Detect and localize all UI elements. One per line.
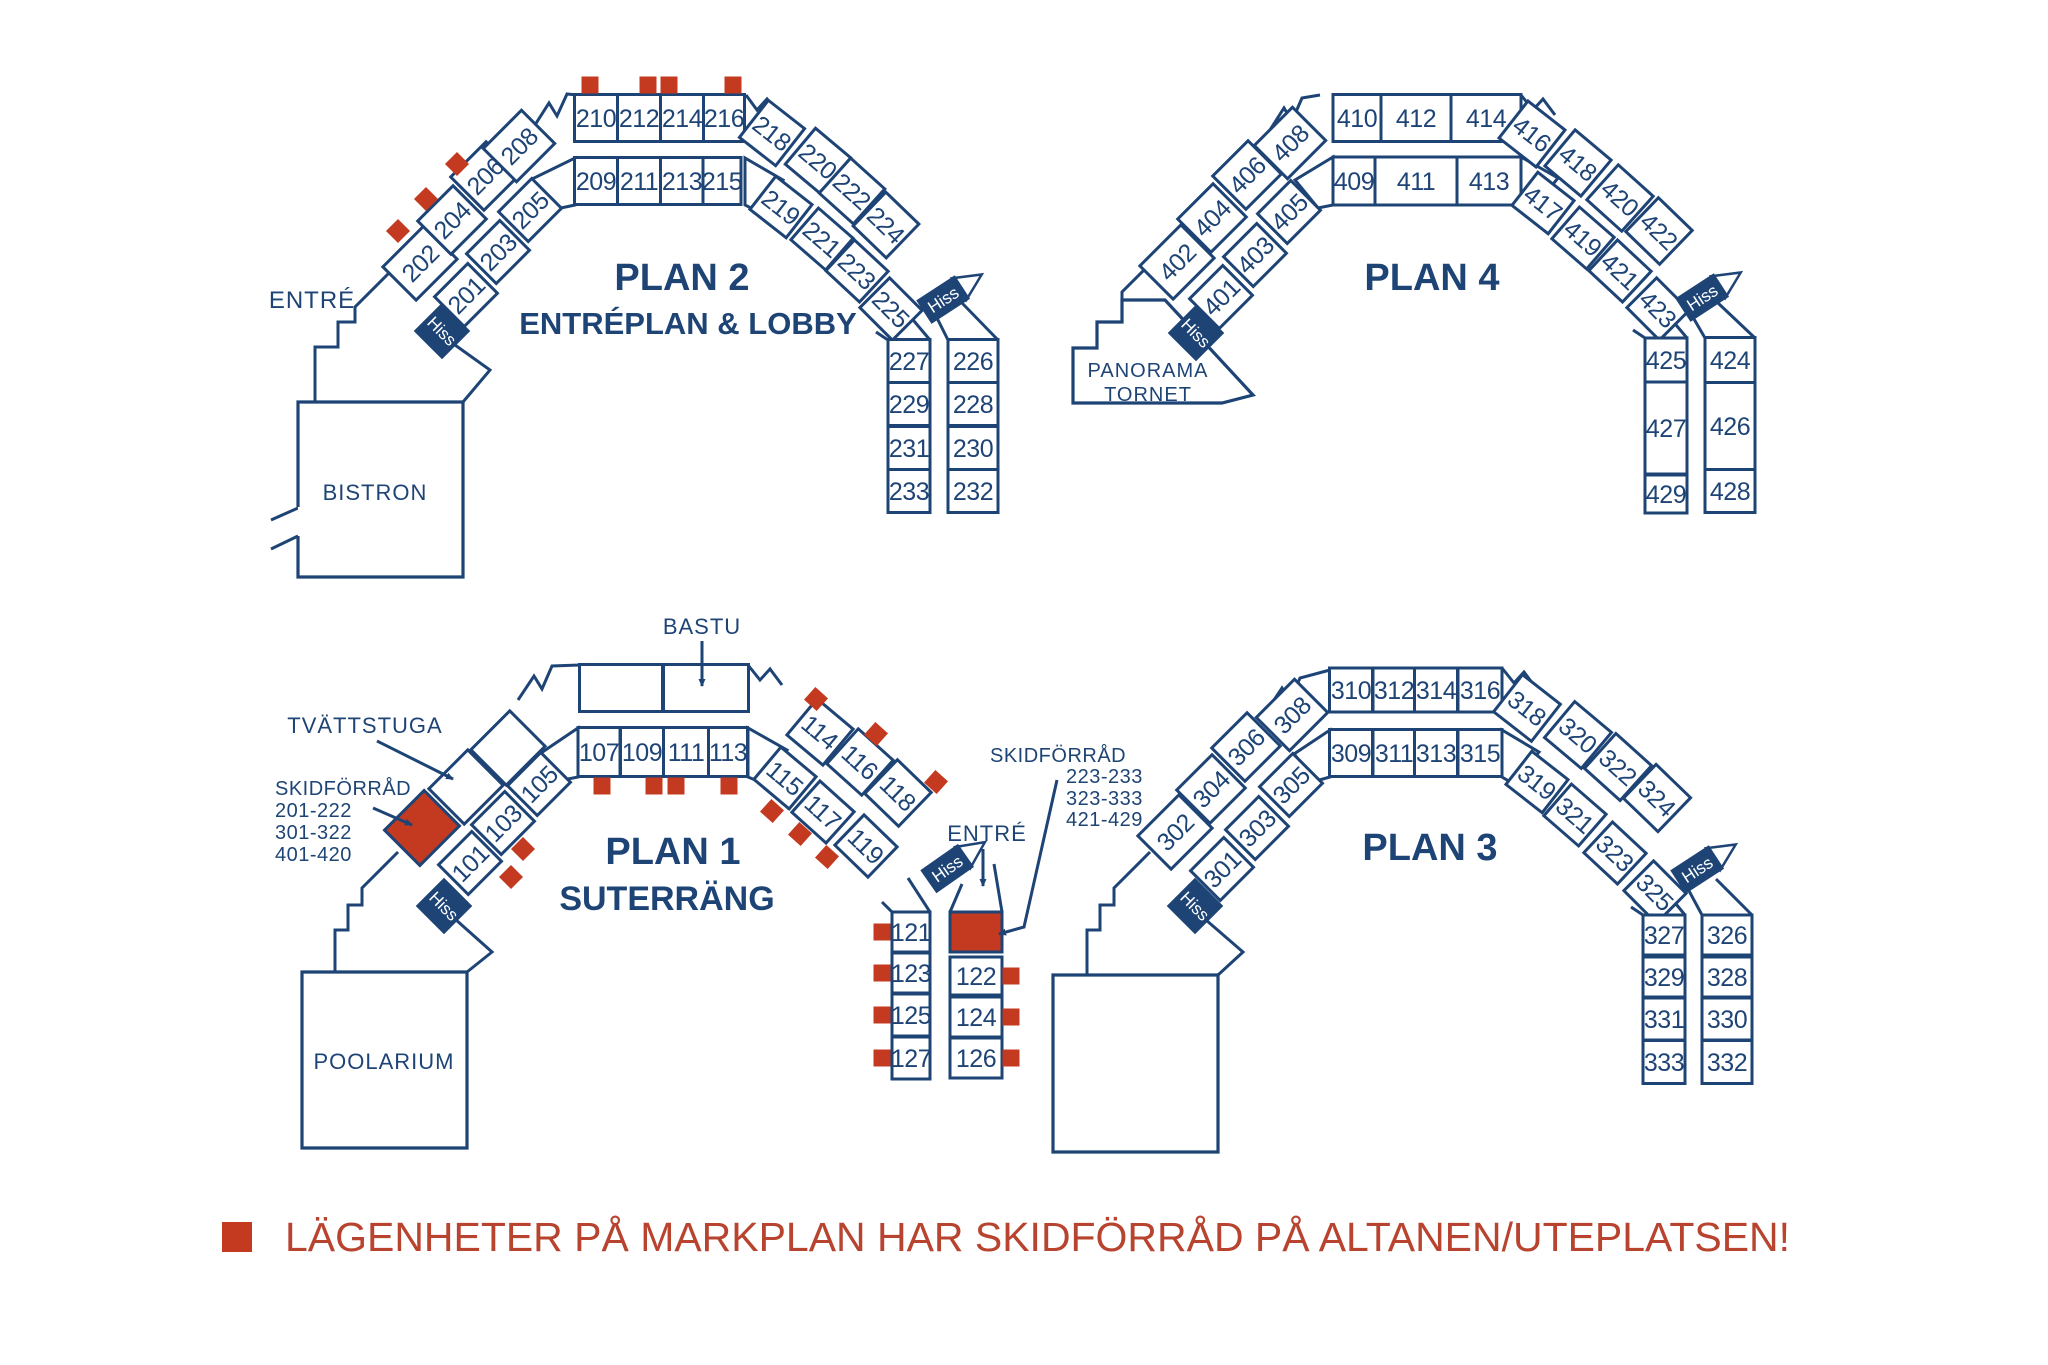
room-number: 427 [1646, 415, 1686, 443]
special-room-label: POOLARIUM [313, 1049, 454, 1074]
ski-storage-marker [725, 77, 742, 94]
room-413: 413 [1457, 157, 1521, 205]
annotation-label: 421-429 [1066, 809, 1143, 831]
room-number: 209 [576, 168, 616, 196]
ski-storage-marker [640, 77, 657, 94]
room-211: 211 [618, 158, 661, 205]
room-333: 333 [1643, 1041, 1685, 1084]
room-212: 212 [618, 95, 661, 142]
room-number: 126 [956, 1045, 996, 1073]
room-number: 329 [1644, 964, 1684, 992]
area-label: BASTU [663, 614, 741, 639]
room-227: 227 [888, 340, 930, 383]
room-number: 125 [891, 1002, 931, 1030]
room-330: 330 [1702, 998, 1752, 1040]
room-233: 233 [888, 470, 930, 513]
room-428: 428 [1705, 470, 1755, 513]
room-111: 111 [664, 728, 709, 777]
room-number: 409 [1334, 168, 1374, 196]
room-427: 427 [1645, 382, 1687, 474]
room-311: 311 [1373, 730, 1415, 777]
annotation-label: SKIDFÖRRÅD [275, 777, 411, 800]
room-124: 124 [950, 997, 1002, 1037]
room-122: 122 [950, 957, 1002, 995]
room-number: 113 [709, 739, 747, 767]
room-number: 411 [1397, 168, 1435, 196]
room-126: 126 [950, 1038, 1002, 1078]
legend-text: LÄGENHETER PÅ MARKPLAN HAR SKIDFÖRRÅD PÅ… [285, 1214, 1790, 1260]
annotation-label: 223-233 [1066, 766, 1143, 788]
room-shape [580, 665, 663, 712]
room-410: 410 [1333, 95, 1381, 142]
room-number: 213 [662, 168, 702, 196]
room-409: 409 [1333, 157, 1375, 205]
room-number: 226 [953, 348, 993, 376]
background [0, 0, 2048, 1365]
area-label: ENTRÉ [269, 287, 355, 314]
room-313: 313 [1415, 730, 1458, 777]
ski-storage-marker [874, 1007, 891, 1024]
ski-storage-marker [668, 778, 685, 795]
room-number: 312 [1374, 677, 1414, 705]
room-number: 227 [889, 348, 929, 376]
room-424: 424 [1705, 338, 1755, 383]
room-number: 122 [956, 963, 996, 991]
plan-title: ENTRÉPLAN & LOBBY [519, 306, 857, 341]
room-327: 327 [1643, 915, 1685, 955]
room-number: 211 [620, 168, 658, 196]
room-number: 316 [1460, 677, 1500, 705]
room-number: 315 [1460, 740, 1500, 768]
room-210: 210 [575, 95, 618, 142]
room-231: 231 [888, 427, 930, 470]
room-number: 123 [891, 960, 931, 988]
room-315: 315 [1458, 730, 1502, 777]
ski-storage-marker [1003, 968, 1020, 985]
room-unlabeled [664, 665, 749, 712]
room-number: 121 [891, 919, 931, 947]
room-426: 426 [1705, 383, 1755, 470]
room-number: 429 [1646, 481, 1686, 509]
legend-group: LÄGENHETER PÅ MARKPLAN HAR SKIDFÖRRÅD PÅ… [222, 1214, 1790, 1260]
room-number: 333 [1644, 1049, 1684, 1077]
plan-title: SUTERRÄNG [559, 880, 774, 918]
room-230: 230 [948, 427, 998, 470]
ski-storage-room [950, 912, 1002, 952]
legend-square-icon [222, 1222, 252, 1252]
ski-storage-marker [874, 965, 891, 982]
room-215: 215 [702, 158, 742, 205]
room-number: 412 [1396, 105, 1436, 133]
annotation-label: SKIDFÖRRÅD [990, 744, 1126, 767]
room-number: 107 [579, 739, 619, 767]
room-314: 314 [1415, 668, 1458, 712]
room-125: 125 [891, 994, 931, 1036]
room-number: 328 [1707, 964, 1747, 992]
ski-storage-marker [594, 778, 611, 795]
room-number: 311 [1375, 740, 1413, 768]
annotation-label: 301-322 [275, 822, 352, 844]
ski-storage-marker [874, 1050, 891, 1067]
area-label: TORNET [1104, 384, 1192, 406]
room-429: 429 [1645, 475, 1687, 513]
plan-title: PLAN 1 [605, 831, 740, 873]
room-328: 328 [1702, 957, 1752, 997]
ski-storage-marker [646, 778, 663, 795]
room-number: 424 [1710, 347, 1751, 375]
annotation-label: 401-420 [275, 844, 352, 866]
room-309: 309 [1330, 730, 1373, 777]
floorplan-canvas: BISTRON210212214216209211213215202204206… [0, 0, 2048, 1365]
room-shape [664, 665, 749, 712]
room-number: 111 [668, 739, 705, 767]
special-room [1053, 975, 1218, 1152]
room-109: 109 [621, 728, 664, 777]
room-310: 310 [1330, 668, 1373, 712]
room-number: 326 [1707, 922, 1747, 950]
room-number: 232 [953, 478, 993, 506]
room-232: 232 [948, 470, 998, 513]
room-121: 121 [891, 912, 931, 952]
floorplan-svg: BISTRON210212214216209211213215202204206… [0, 0, 2048, 1365]
room-number: 410 [1337, 105, 1377, 133]
ski-storage-marker [874, 924, 891, 941]
room-number: 414 [1466, 105, 1507, 133]
area-label: ENTRÉ [947, 821, 1027, 846]
room-216: 216 [704, 95, 745, 142]
annotation-label: 323-333 [1066, 788, 1143, 810]
room-number: 210 [576, 105, 616, 133]
room-213: 213 [661, 158, 704, 205]
room-number: 426 [1710, 413, 1750, 441]
room-number: 124 [956, 1004, 997, 1032]
ski-storage-marker [582, 77, 599, 94]
room-number: 233 [889, 478, 929, 506]
room-number: 313 [1416, 740, 1456, 768]
room-number: 212 [619, 105, 659, 133]
room-number: 314 [1416, 677, 1457, 705]
room-number: 127 [891, 1045, 931, 1073]
room-number: 229 [889, 391, 929, 419]
room-number: 215 [702, 168, 742, 196]
room-113: 113 [709, 728, 748, 777]
room-425: 425 [1645, 338, 1687, 382]
area-label: PANORAMA [1088, 360, 1209, 382]
room-number: 228 [953, 391, 993, 419]
ski-storage-marker [1003, 1009, 1020, 1026]
room-107: 107 [578, 728, 620, 777]
plan-title: PLAN 4 [1364, 257, 1499, 299]
room-312: 312 [1373, 668, 1415, 712]
room-127: 127 [891, 1037, 931, 1079]
room-number: 327 [1644, 922, 1684, 950]
room-number: 309 [1331, 740, 1371, 768]
room-229: 229 [888, 383, 930, 426]
room-number: 230 [953, 435, 993, 463]
room-329: 329 [1643, 957, 1685, 997]
room-226: 226 [948, 340, 998, 383]
plan-title: PLAN 3 [1362, 827, 1497, 869]
room-412: 412 [1381, 95, 1451, 142]
room-number: 216 [704, 105, 744, 133]
room-number: 231 [889, 435, 929, 463]
room-number: 428 [1710, 478, 1750, 506]
room-214: 214 [661, 95, 704, 142]
plan-title: PLAN 2 [614, 257, 749, 299]
ski-storage-marker [661, 77, 678, 94]
room-number: 332 [1707, 1049, 1747, 1077]
room-332: 332 [1702, 1041, 1752, 1084]
room-number: 331 [1644, 1006, 1684, 1034]
room-number: 413 [1469, 168, 1509, 196]
special-room-label: BISTRON [323, 480, 428, 505]
room-number: 109 [622, 739, 662, 767]
room-411: 411 [1375, 157, 1457, 205]
room-123: 123 [891, 953, 931, 993]
room-209: 209 [575, 158, 618, 205]
area-label: TVÄTTSTUGA [287, 713, 442, 738]
room-331: 331 [1643, 998, 1685, 1040]
room-number: 214 [662, 105, 703, 133]
room-316: 316 [1458, 668, 1502, 712]
ski-storage-marker [721, 778, 738, 795]
room-number: 425 [1646, 347, 1686, 375]
room-228: 228 [948, 383, 998, 426]
room-number: 330 [1707, 1006, 1747, 1034]
room-unlabeled [580, 665, 663, 712]
room-326: 326 [1702, 915, 1752, 955]
ski-storage-marker [1003, 1050, 1020, 1067]
annotation-label: 201-222 [275, 800, 352, 822]
room-number: 310 [1331, 677, 1371, 705]
